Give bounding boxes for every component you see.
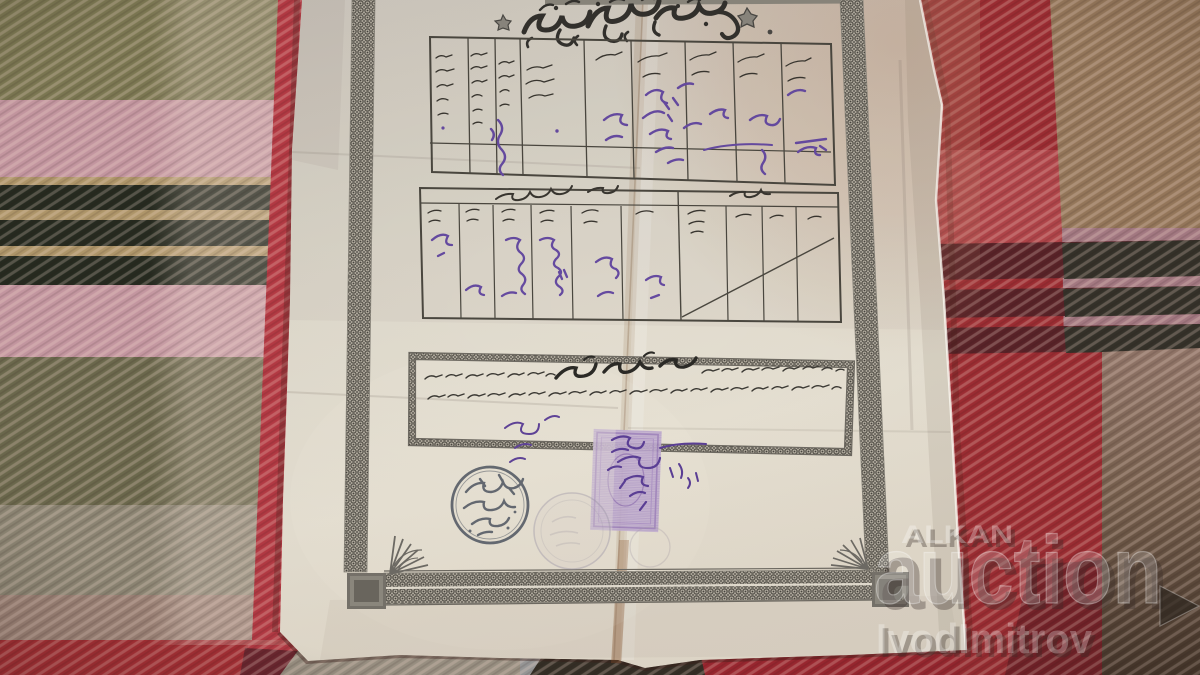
- svg-text:IvodImitrov: IvodImitrov: [876, 615, 1093, 662]
- svg-text:auction: auction: [874, 517, 1162, 624]
